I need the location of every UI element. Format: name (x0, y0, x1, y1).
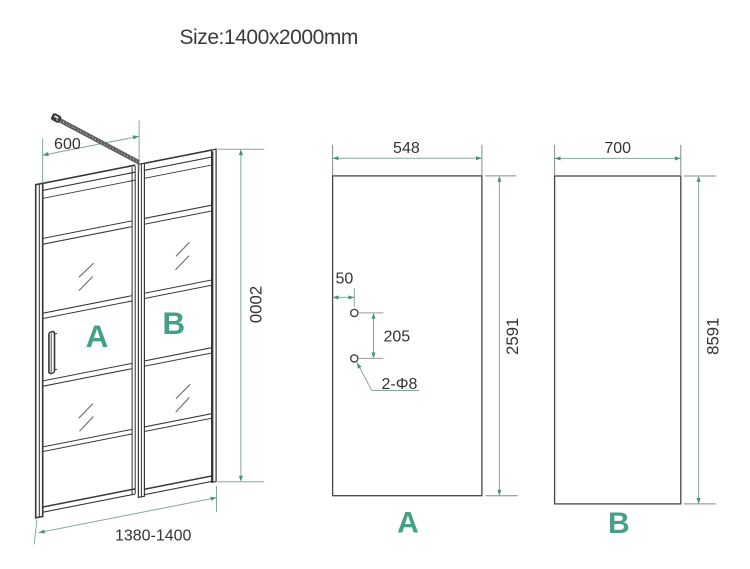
svg-text:205: 205 (384, 329, 411, 346)
svg-text:1380-1400: 1380-1400 (115, 528, 192, 545)
svg-text:548: 548 (393, 140, 420, 157)
svg-text:B: B (608, 507, 630, 540)
svg-text:8591: 8591 (703, 318, 722, 355)
svg-text:600: 600 (54, 136, 81, 153)
svg-text:0002: 0002 (246, 286, 265, 323)
svg-text:50: 50 (336, 271, 354, 288)
svg-text:Size:1400x2000mm: Size:1400x2000mm (180, 26, 358, 49)
svg-text:A: A (397, 507, 419, 540)
svg-text:700: 700 (604, 140, 631, 157)
svg-text:B: B (162, 305, 185, 341)
svg-text:2591: 2591 (503, 318, 522, 355)
svg-text:2-Φ8: 2-Φ8 (382, 376, 418, 393)
svg-text:A: A (86, 318, 109, 354)
